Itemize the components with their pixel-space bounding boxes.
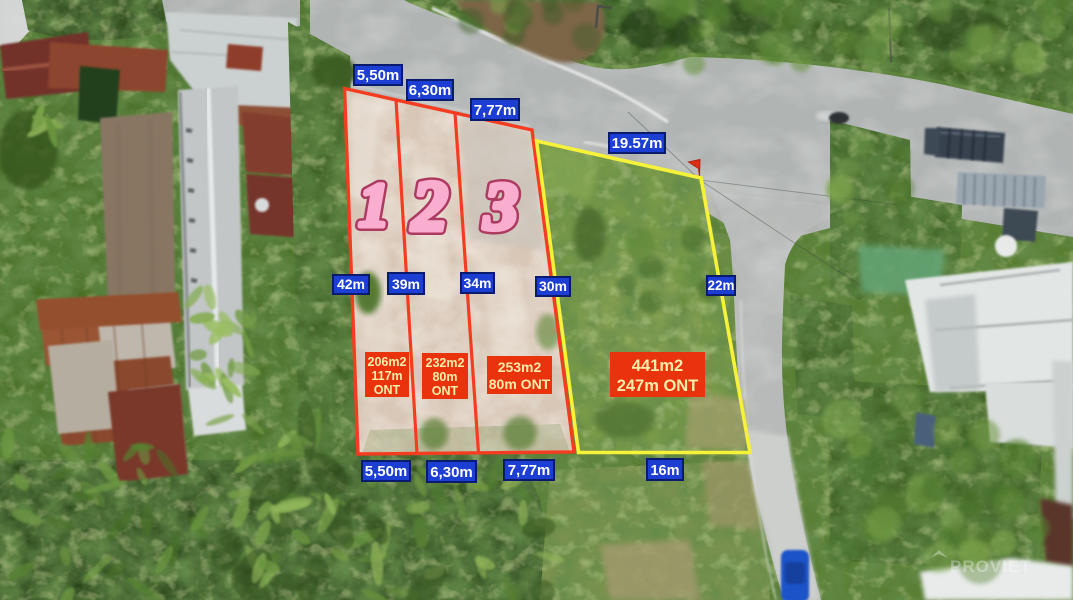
svg-text:3: 3 xyxy=(483,168,518,244)
svg-text:441m2: 441m2 xyxy=(632,357,683,375)
svg-text:5,50m: 5,50m xyxy=(357,67,400,84)
svg-text:39m: 39m xyxy=(392,276,420,292)
svg-text:19.57m: 19.57m xyxy=(612,135,663,152)
svg-text:206m2: 206m2 xyxy=(368,355,407,369)
svg-text:42m: 42m xyxy=(337,276,365,292)
svg-text:7,77m: 7,77m xyxy=(474,102,517,119)
svg-text:117m: 117m xyxy=(371,369,402,383)
svg-text:ONT: ONT xyxy=(374,383,401,397)
svg-text:247m ONT: 247m ONT xyxy=(617,377,699,395)
svg-text:7,77m: 7,77m xyxy=(508,462,551,479)
svg-text:16m: 16m xyxy=(650,463,679,479)
svg-text:6,30m: 6,30m xyxy=(430,464,473,481)
svg-text:34m: 34m xyxy=(463,275,491,291)
svg-text:PROVIET: PROVIET xyxy=(950,557,1032,576)
svg-text:ONT: ONT xyxy=(432,384,459,398)
svg-text:80m: 80m xyxy=(432,370,457,384)
svg-text:1: 1 xyxy=(359,172,390,240)
svg-text:30m: 30m xyxy=(539,278,567,294)
svg-text:6,30m: 6,30m xyxy=(409,82,452,99)
svg-text:80m ONT: 80m ONT xyxy=(489,376,551,392)
svg-text:2: 2 xyxy=(411,166,448,246)
svg-text:22m: 22m xyxy=(707,278,734,293)
svg-text:232m2: 232m2 xyxy=(426,356,465,370)
svg-text:253m2: 253m2 xyxy=(498,359,542,375)
svg-text:5,50m: 5,50m xyxy=(365,463,408,480)
